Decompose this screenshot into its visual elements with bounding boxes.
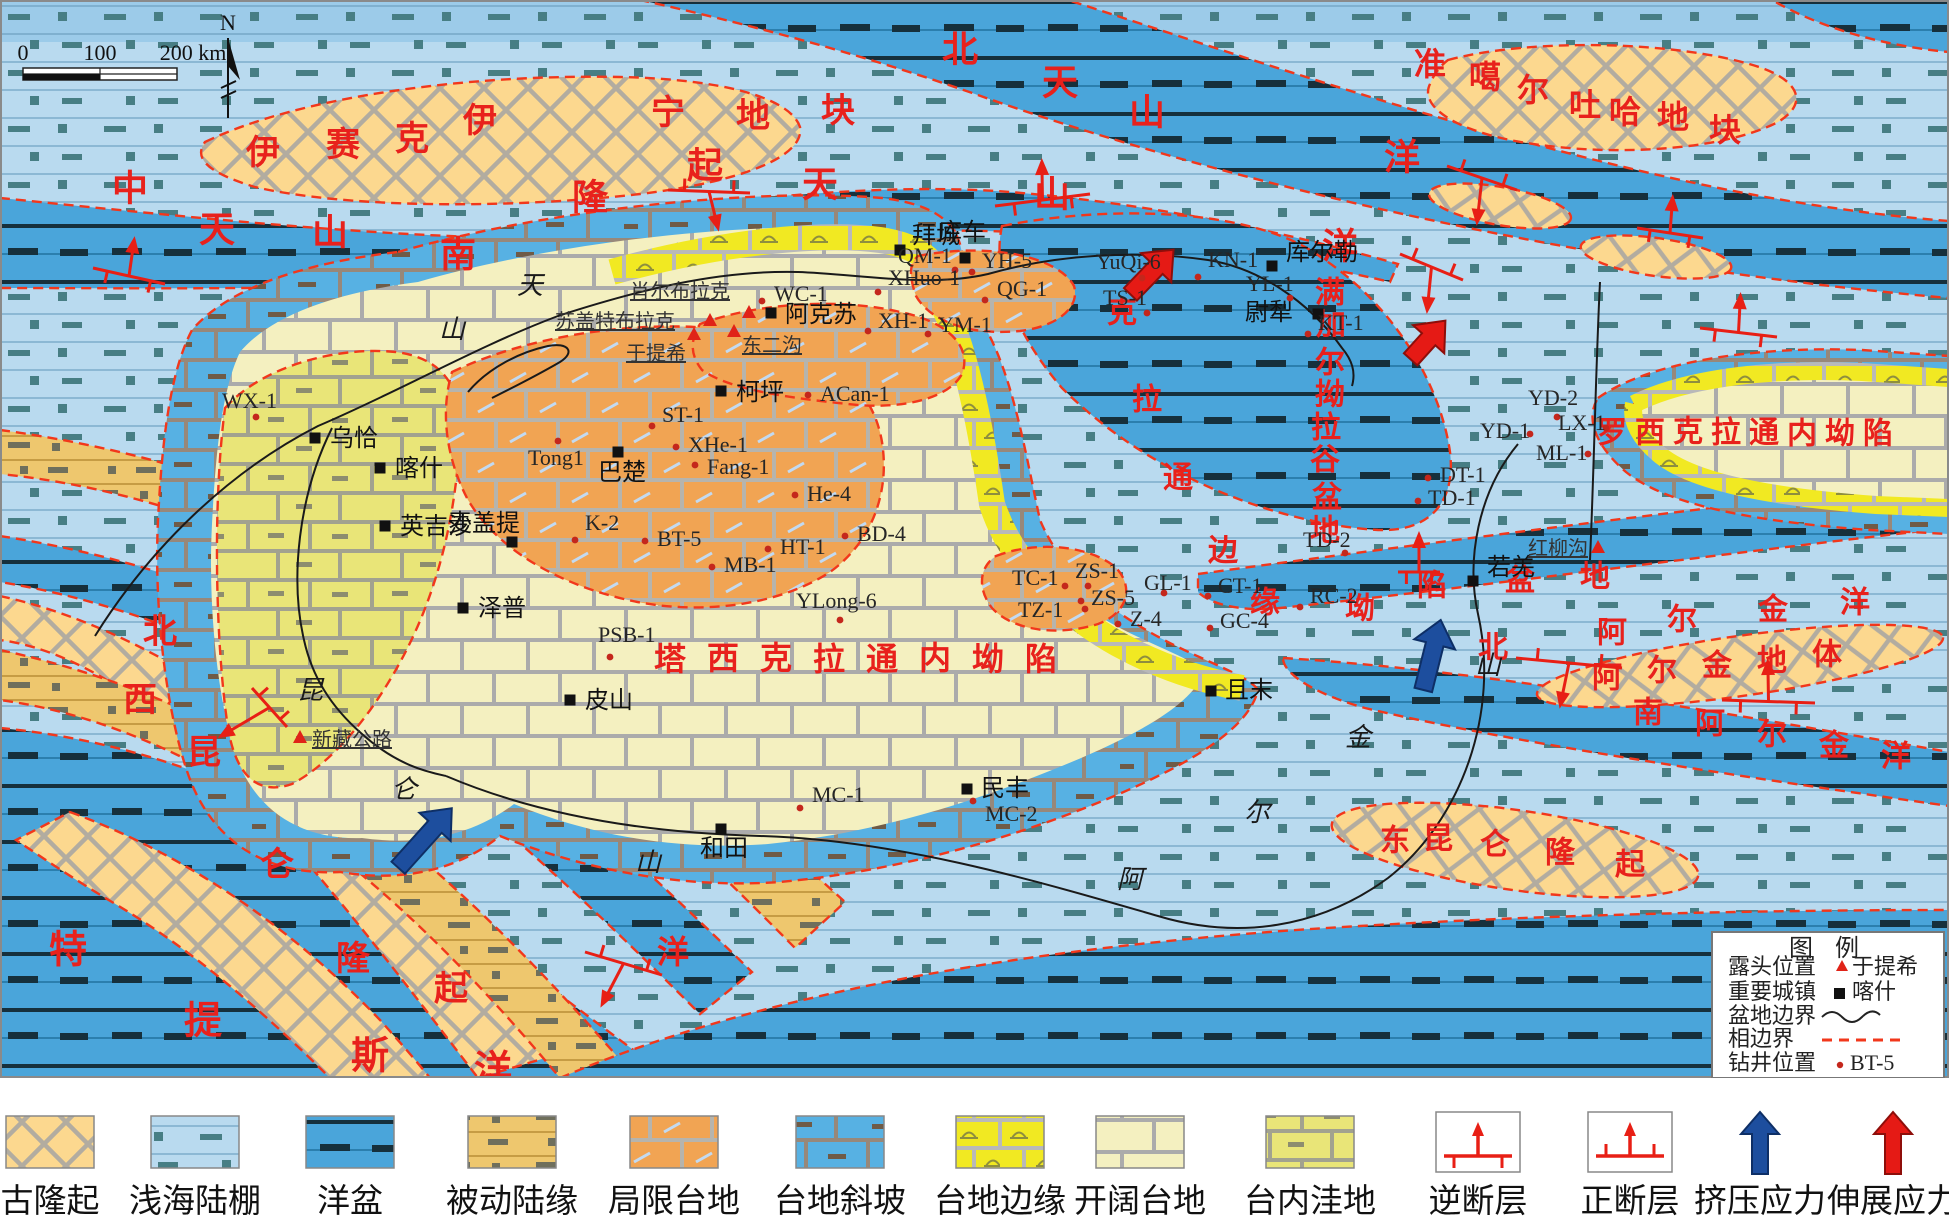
svg-text:坳: 坳 — [972, 641, 1004, 677]
swatch-ocean — [306, 1116, 394, 1168]
bottom-legend-item-normal: 正断层 — [1581, 1112, 1680, 1219]
svg-text:克: 克 — [1673, 416, 1703, 449]
svg-text:通: 通 — [1163, 462, 1193, 495]
svg-text:地: 地 — [1580, 561, 1610, 594]
svg-text:陷: 陷 — [1863, 418, 1893, 451]
svg-text:伊: 伊 — [245, 134, 280, 172]
svg-text:克: 克 — [395, 120, 429, 158]
well-label: GC-4 — [1220, 608, 1269, 633]
svg-text:南: 南 — [1633, 697, 1663, 730]
well-label: GL-1 — [1144, 570, 1192, 595]
svg-text:起: 起 — [434, 970, 469, 1008]
svg-text:重要城镇: 重要城镇 — [1728, 979, 1816, 1004]
well-YD-1: YD-1 — [1480, 418, 1533, 443]
legend-row-town: 重要城镇喀什 — [1728, 979, 1896, 1004]
svg-text:山: 山 — [1475, 651, 1503, 680]
town-label: 麦盖提 — [448, 510, 520, 537]
svg-text:西: 西 — [1635, 417, 1665, 450]
svg-text:内: 内 — [919, 640, 951, 676]
well-label: TD-2 — [1303, 527, 1351, 552]
svg-text:相边界: 相边界 — [1728, 1026, 1794, 1051]
well-label: MC-2 — [985, 801, 1038, 826]
svg-text:吐: 吐 — [1569, 87, 1601, 123]
well-label: Fang-1 — [707, 454, 769, 479]
svg-text:洋: 洋 — [1840, 587, 1870, 620]
well-label: XH-1 — [878, 308, 928, 333]
well-label: TC-1 — [1012, 565, 1058, 590]
svg-text:拗: 拗 — [1315, 379, 1345, 412]
well-label: BT-5 — [657, 526, 701, 551]
svg-text:盆: 盆 — [1312, 482, 1343, 515]
svg-text:尔: 尔 — [1517, 72, 1549, 108]
well-label: YD-2 — [1528, 385, 1578, 410]
town-label: 喀什 — [395, 455, 443, 482]
svg-text:陷: 陷 — [1025, 641, 1057, 677]
svg-text:喀什: 喀什 — [1852, 979, 1896, 1004]
svg-text:地: 地 — [1657, 99, 1689, 135]
well-label: TD-1 — [1428, 485, 1476, 510]
svg-text:内: 内 — [1787, 418, 1817, 451]
town-label: 且末 — [1225, 677, 1273, 704]
svg-text:昆: 昆 — [297, 676, 325, 705]
well-label: YM-1 — [938, 312, 992, 337]
bottom-legend-label: 洋盆 — [317, 1182, 383, 1219]
svg-text:金: 金 — [1345, 723, 1374, 752]
svg-text:0: 0 — [18, 40, 29, 65]
well-label: KN-1 — [1208, 247, 1258, 272]
bottom-legend-label: 正断层 — [1581, 1182, 1680, 1219]
well-GL-1: GL-1 — [1144, 570, 1192, 596]
well-label: Z-4 — [1130, 606, 1162, 631]
svg-text:克: 克 — [760, 640, 792, 676]
bottom-legend-label: 被动陆缘 — [446, 1182, 578, 1219]
svg-text:特: 特 — [49, 929, 87, 971]
svg-text:斯: 斯 — [351, 1035, 389, 1077]
svg-text:西: 西 — [707, 640, 739, 676]
well-label: ZS-1 — [1075, 558, 1119, 583]
svg-text:通: 通 — [1749, 417, 1779, 450]
svg-text:洋: 洋 — [1881, 741, 1911, 774]
outcrop-label-红柳沟: 红柳沟 — [1528, 537, 1588, 560]
svg-text:起: 起 — [687, 146, 724, 186]
svg-text:阿: 阿 — [1597, 617, 1627, 650]
outcrop-label-肖尔布拉克: 肖尔布拉克 — [630, 280, 730, 303]
svg-text:尔: 尔 — [1315, 347, 1345, 380]
svg-text:谷: 谷 — [1310, 444, 1340, 477]
svg-text:隆: 隆 — [572, 178, 609, 218]
well-dot-icon — [1837, 1062, 1843, 1068]
svg-text:山: 山 — [312, 213, 348, 253]
svg-text:拉: 拉 — [813, 641, 845, 677]
bottom-legend-label: 台地边缘 — [934, 1182, 1066, 1219]
svg-text:哈: 哈 — [1609, 94, 1641, 130]
town-label: 民丰 — [981, 775, 1029, 802]
svg-text:天: 天 — [802, 165, 838, 205]
svg-text:伊: 伊 — [462, 102, 497, 140]
svg-text:宁: 宁 — [651, 94, 685, 132]
svg-text:天: 天 — [517, 271, 546, 300]
legend-row-well: 钻井位置BT-5 — [1728, 1050, 1894, 1075]
bottom-legend-label: 挤压应力 — [1694, 1182, 1826, 1219]
svg-text:100: 100 — [84, 40, 117, 65]
svg-text:于提希: 于提希 — [1852, 954, 1918, 979]
bottom-legend-label: 局限台地 — [608, 1182, 740, 1219]
well-label: YH-5 — [982, 248, 1032, 273]
svg-text:边: 边 — [1208, 535, 1239, 568]
bottom-legend-item-uplift: 古隆起 — [1, 1116, 100, 1219]
svg-text:洋: 洋 — [657, 934, 689, 970]
svg-text:塔: 塔 — [654, 641, 687, 677]
svg-text:起: 起 — [1615, 849, 1646, 882]
well-label: MC-1 — [812, 782, 865, 807]
swatch-slope — [796, 1116, 884, 1168]
svg-text:赛: 赛 — [326, 125, 361, 164]
svg-text:BT-5: BT-5 — [1850, 1050, 1894, 1075]
well-label: ZS-5 — [1091, 585, 1135, 610]
svg-text:东: 东 — [1380, 824, 1410, 858]
svg-text:块: 块 — [1709, 112, 1741, 148]
well-label: CT-1 — [1218, 573, 1262, 598]
well-LX-1: LX-1 — [1558, 410, 1609, 435]
bottom-legend-label: 台内洼地 — [1244, 1182, 1376, 1219]
well-label: WX-1 — [222, 388, 277, 413]
well-label: WC-1 — [774, 281, 828, 306]
town-label: 尉犁 — [1245, 299, 1293, 326]
bottom-legend-label: 台地斜坡 — [774, 1182, 906, 1219]
town-label: 库尔勒 — [1286, 239, 1358, 266]
well-label: BD-4 — [857, 521, 906, 546]
well-ML-1: ML-1 — [1536, 440, 1591, 465]
well-label: Tong1 — [528, 445, 584, 470]
svg-text:西: 西 — [123, 682, 157, 719]
well-label: QG-1 — [997, 276, 1047, 301]
svg-text:金: 金 — [1818, 729, 1850, 763]
well-label: YL-1 — [1246, 271, 1294, 296]
town-label: 和田 — [700, 835, 748, 862]
svg-text:仑: 仑 — [1480, 829, 1510, 862]
town-square-icon — [1834, 988, 1845, 999]
bottom-legend-label: 伸展应力 — [1827, 1182, 1949, 1219]
svg-text:昆: 昆 — [187, 735, 221, 772]
svg-text:仑: 仑 — [391, 775, 420, 804]
svg-text:提: 提 — [184, 1000, 222, 1042]
bottom-legend-item-thrust: 逆断层 — [1429, 1112, 1528, 1219]
legend-box: 图 例 露头位置于提希重要城镇喀什盆地边界相边界钻井位置BT-5 — [1712, 932, 1944, 1078]
swatch-open — [1096, 1116, 1184, 1168]
bottom-legend-label: 浅海陆棚 — [129, 1182, 261, 1219]
well-label: LX-1 — [1558, 410, 1606, 435]
town-label: 巴楚 — [598, 459, 646, 486]
swatch-passive — [468, 1116, 556, 1168]
well-label: DT-1 — [1440, 462, 1486, 487]
well-label: ACan-1 — [820, 381, 890, 406]
svg-text:尔: 尔 — [1647, 655, 1677, 688]
swatch-restricted — [630, 1116, 718, 1168]
well-label: ML-1 — [1536, 440, 1587, 465]
svg-text:天: 天 — [1042, 63, 1078, 103]
svg-text:尔: 尔 — [1244, 798, 1273, 827]
svg-text:准: 准 — [1414, 46, 1446, 82]
town-label: 泽普 — [478, 595, 526, 622]
svg-text:拉: 拉 — [1711, 416, 1741, 450]
town-label: 皮山 — [585, 687, 633, 714]
svg-text:尔: 尔 — [1757, 719, 1787, 752]
swatch-lowland — [1266, 1116, 1354, 1168]
svg-text:山: 山 — [439, 315, 467, 344]
svg-text:块: 块 — [821, 92, 855, 130]
svg-text:尔: 尔 — [1667, 604, 1697, 637]
svg-text:钻井位置: 钻井位置 — [1728, 1050, 1816, 1075]
well-TD-2: TD-2 — [1303, 527, 1351, 556]
outcrop-label-新藏公路: 新藏公路 — [312, 728, 392, 751]
swatch-shelf — [151, 1116, 239, 1168]
svg-text:洋: 洋 — [1384, 138, 1420, 178]
svg-text:山: 山 — [1034, 175, 1070, 215]
well-label: PSB-1 — [598, 622, 655, 647]
well-label: RC-2 — [1310, 583, 1358, 608]
swatch-uplift — [6, 1116, 94, 1168]
svg-text:南: 南 — [440, 235, 476, 275]
svg-text:满: 满 — [1315, 277, 1345, 310]
well-label: MB-1 — [724, 552, 777, 577]
svg-text:阿: 阿 — [1695, 708, 1725, 741]
bottom-legend-label: 开阔台地 — [1074, 1182, 1206, 1219]
outcrop-label-于提希: 于提希 — [626, 342, 686, 365]
well-label: TZ-1 — [1018, 597, 1063, 622]
svg-text:隆: 隆 — [1545, 837, 1576, 870]
map-label-ocean-char: 洋 — [657, 934, 689, 970]
svg-text:中: 中 — [112, 169, 148, 209]
tarim-paleofacies-map: 伊赛克伊宁地块准噶尔吐哈地块北天山洋中天山隆起南天山洋满加尔拗拉谷盆地克拉通边缘… — [0, 0, 1949, 1222]
well-label: K-2 — [585, 510, 619, 535]
svg-text:山: 山 — [1129, 93, 1165, 133]
svg-text:N: N — [220, 10, 236, 35]
outcrop-label-苏盖特布拉克: 苏盖特布拉克 — [555, 310, 675, 333]
svg-text:盆地边界: 盆地边界 — [1728, 1003, 1816, 1028]
well-label: YLong-6 — [796, 588, 877, 613]
paleogeographic-map-page: 伊赛克伊宁地块准噶尔吐哈地块北天山洋中天山隆起南天山洋满加尔拗拉谷盆地克拉通边缘… — [0, 0, 1949, 1222]
svg-text:北: 北 — [942, 30, 978, 70]
outcrop-label-东二沟: 东二沟 — [742, 334, 802, 357]
well-label: YuQi-6 — [1096, 249, 1161, 274]
bottom-legend-item-ocean: 洋盆 — [306, 1116, 394, 1219]
svg-text:山: 山 — [635, 848, 663, 877]
town-label: 乌恰 — [330, 425, 378, 452]
well-label: HT-1 — [780, 534, 826, 559]
bottom-legend-label: 古隆起 — [1, 1182, 100, 1219]
well-label: KT-1 — [1318, 310, 1364, 335]
svg-text:昆: 昆 — [1423, 823, 1453, 856]
svg-text:拉: 拉 — [1132, 383, 1162, 417]
svg-text:露头位置: 露头位置 — [1728, 954, 1816, 979]
town-label: 库车 — [938, 219, 986, 246]
svg-text:地: 地 — [736, 97, 770, 135]
svg-text:仑: 仑 — [260, 846, 294, 884]
svg-text:天: 天 — [199, 210, 235, 250]
svg-text:拉: 拉 — [1311, 411, 1341, 445]
swatch-margin — [956, 1116, 1044, 1168]
well-label: XHuo-1 — [888, 265, 960, 290]
svg-text:金: 金 — [1701, 649, 1733, 683]
svg-text:200 km: 200 km — [160, 40, 227, 65]
bottom-legend-label: 逆断层 — [1429, 1182, 1528, 1219]
svg-text:噶: 噶 — [1469, 59, 1501, 95]
well-label: He-4 — [807, 481, 851, 506]
svg-text:北: 北 — [143, 614, 177, 651]
well-label: TS-1 — [1103, 285, 1147, 310]
svg-text:坳: 坳 — [1825, 418, 1855, 451]
svg-text:通: 通 — [866, 641, 898, 677]
svg-text:金: 金 — [1757, 593, 1789, 627]
well-label: YD-1 — [1480, 418, 1530, 443]
well-label: ST-1 — [662, 402, 704, 427]
town-label: 柯坪 — [736, 379, 784, 406]
svg-text:隆: 隆 — [336, 940, 371, 978]
svg-text:体: 体 — [1812, 639, 1843, 672]
